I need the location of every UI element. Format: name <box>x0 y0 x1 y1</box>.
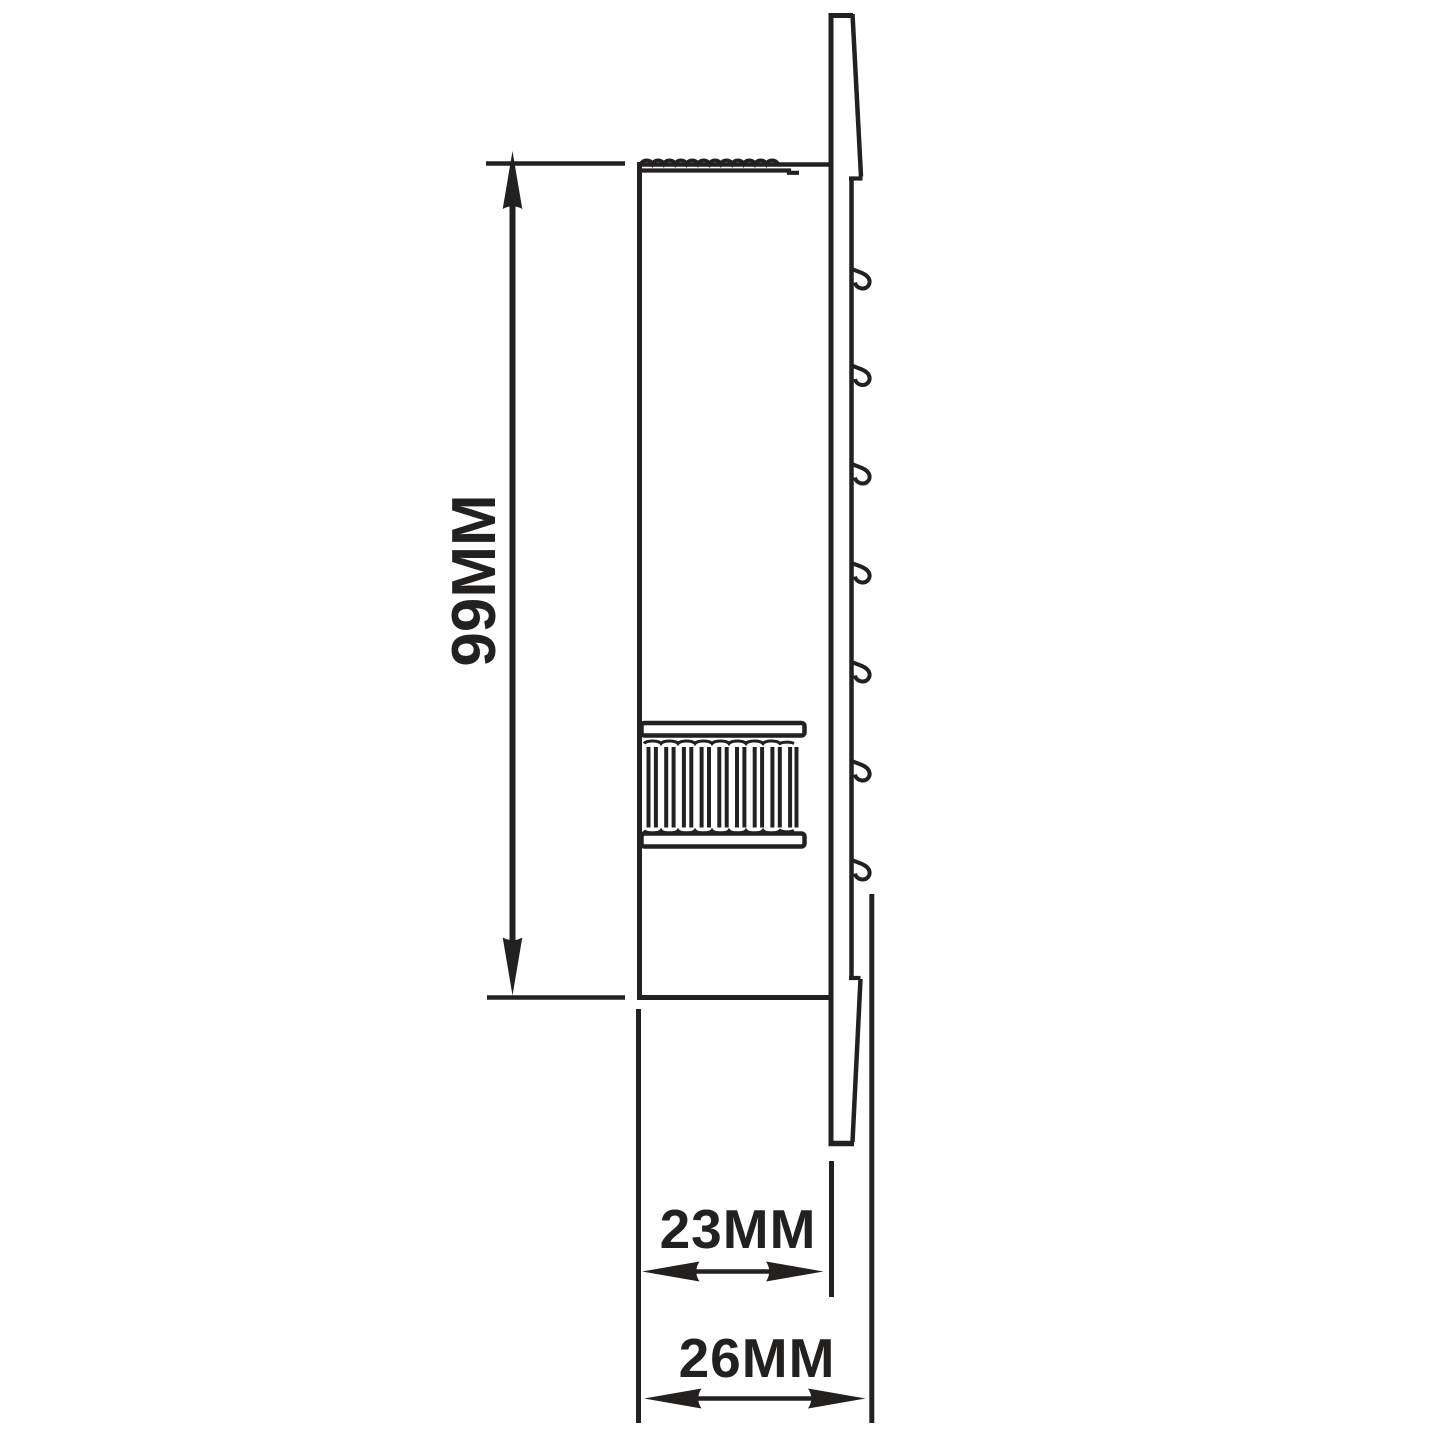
svg-text:23MM: 23MM <box>660 1198 817 1260</box>
svg-text:99MM: 99MM <box>440 494 509 666</box>
svg-text:26MM: 26MM <box>679 1327 836 1389</box>
